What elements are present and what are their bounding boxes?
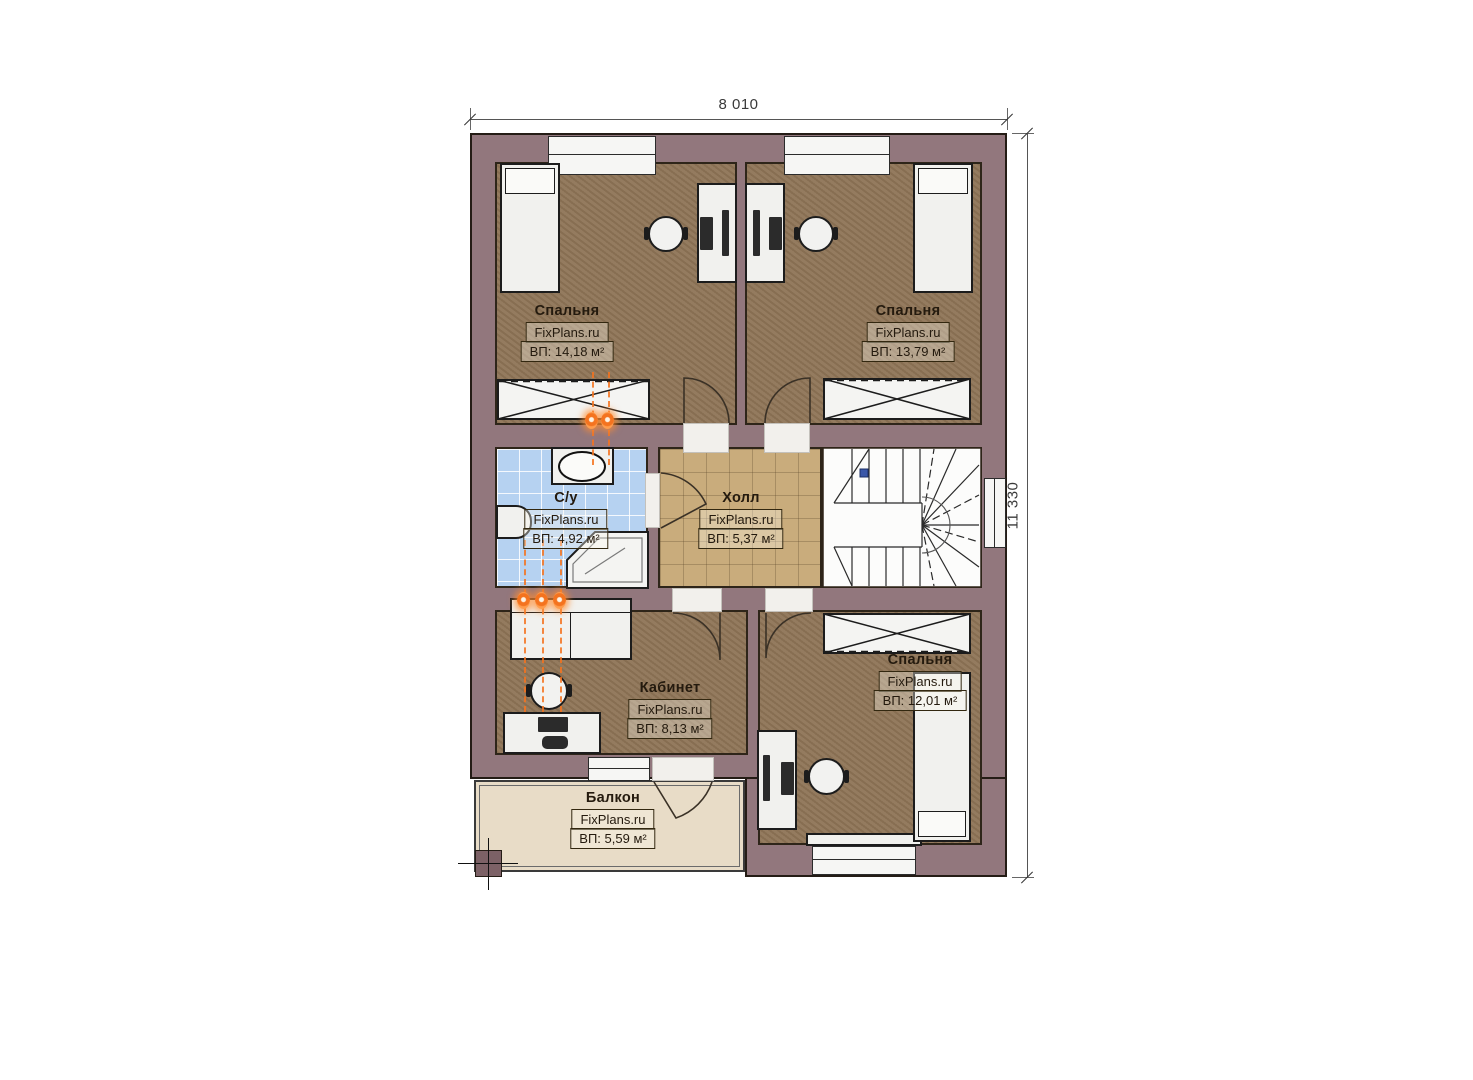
- printer-icon: [542, 736, 568, 749]
- area-box: ВП: 13,79 м²: [862, 341, 955, 362]
- sofa-back-line: [512, 612, 630, 613]
- floor-plan-canvas: 8 010 11 330: [0, 0, 1473, 1080]
- staircase: [822, 447, 982, 588]
- riser-line: [560, 540, 562, 712]
- riser-dot: [601, 412, 614, 429]
- chair: [798, 216, 834, 252]
- monitor-icon: [769, 217, 782, 250]
- window-bedroom-top-right: [784, 136, 890, 175]
- pillow: [918, 811, 966, 837]
- dimension-width-line: [470, 119, 1007, 120]
- dimension-height-line: [1027, 133, 1028, 877]
- wardrobe: [823, 613, 971, 654]
- room-name: Холл: [722, 490, 760, 506]
- door-opening-bathroom: [645, 473, 660, 528]
- room-label-office: Кабинет FixPlans.ru ВП: 8,13 м²: [627, 680, 712, 739]
- window-stairwell: [984, 478, 1006, 548]
- window-bedroom-bottom: [812, 846, 916, 875]
- area-box: ВП: 14,18 м²: [521, 341, 614, 362]
- dimension-width-label: 8 010: [470, 96, 1007, 113]
- dimension-extension: [1012, 877, 1034, 878]
- riser-dot: [517, 592, 530, 609]
- monitor-icon: [700, 217, 713, 250]
- pillow: [918, 168, 968, 194]
- room-name: Кабинет: [640, 680, 701, 696]
- monitor-icon: [763, 755, 770, 801]
- sink-basin: [558, 451, 606, 482]
- watermark-box: FixPlans.ru: [866, 322, 949, 343]
- dimension-height-label: 11 330: [1005, 466, 1022, 546]
- bed: [500, 163, 560, 293]
- area-box: ВП: 4,92 м²: [523, 528, 608, 549]
- windowsill-bedroom-bottom: [806, 833, 922, 846]
- riser-line: [524, 540, 526, 712]
- watermark-box: FixPlans.ru: [878, 671, 961, 692]
- area-box: ВП: 5,37 м²: [698, 528, 783, 549]
- room-label-hall: Холл FixPlans.ru ВП: 5,37 м²: [698, 490, 783, 549]
- chair: [648, 216, 684, 252]
- area-box: ВП: 5,59 м²: [570, 828, 655, 849]
- wardrobe: [497, 379, 650, 420]
- watermark-box: FixPlans.ru: [628, 699, 711, 720]
- room-label-bedroom-top-right: Спальня FixPlans.ru ВП: 13,79 м²: [862, 303, 955, 362]
- bed: [913, 163, 973, 293]
- door-arc-balcony: [652, 781, 714, 823]
- door-arc-bedroom-bottom: [765, 612, 813, 660]
- riser-dot: [535, 592, 548, 609]
- wardrobe: [823, 378, 971, 420]
- sofa-cushion-divider: [570, 612, 571, 658]
- riser-dot: [585, 412, 598, 429]
- room-label-bedroom-top-left: Спальня FixPlans.ru ВП: 14,18 м²: [521, 303, 614, 362]
- room-label-bedroom-bottom-right: Спальня FixPlans.ru ВП: 12,01 м²: [874, 652, 967, 711]
- monitor-icon: [722, 210, 729, 256]
- watermark-box: FixPlans.ru: [524, 509, 607, 530]
- pillow: [505, 168, 555, 194]
- door-arc-bedroom-top-left: [683, 377, 730, 424]
- watermark-box: FixPlans.ru: [699, 509, 782, 530]
- watermark-box: FixPlans.ru: [525, 322, 608, 343]
- room-name: С/у: [554, 490, 577, 506]
- door-opening-balcony: [652, 757, 714, 781]
- chair: [530, 672, 568, 710]
- room-name: Спальня: [888, 652, 953, 668]
- room-name: Спальня: [876, 303, 941, 319]
- door-opening-office: [672, 588, 722, 612]
- sofa: [510, 598, 632, 660]
- watermark-box: FixPlans.ru: [571, 809, 654, 830]
- window-office-balcony: [588, 757, 650, 781]
- room-label-bathroom: С/у FixPlans.ru ВП: 4,92 м²: [523, 490, 608, 549]
- window-bedroom-top-left: [548, 136, 656, 175]
- column-axis-line: [488, 838, 489, 890]
- riser-line: [542, 540, 544, 712]
- door-opening-bedroom-top-left: [683, 423, 729, 453]
- dimension-extension: [1012, 133, 1034, 134]
- room-name: Спальня: [535, 303, 600, 319]
- chair: [808, 758, 845, 795]
- riser-dot: [553, 592, 566, 609]
- monitor-icon: [753, 210, 760, 256]
- monitor-icon: [538, 717, 568, 732]
- door-opening-bedroom-bottom: [765, 588, 813, 612]
- stair-marker: [860, 469, 868, 477]
- door-opening-bedroom-top-right: [764, 423, 810, 453]
- room-name: Балкон: [586, 790, 640, 806]
- door-arc-office: [672, 612, 722, 662]
- area-box: ВП: 8,13 м²: [627, 718, 712, 739]
- area-box: ВП: 12,01 м²: [874, 690, 967, 711]
- door-arc-bedroom-top-right: [764, 377, 811, 424]
- room-label-balcony: Балкон FixPlans.ru ВП: 5,59 м²: [570, 790, 655, 849]
- monitor-icon: [781, 762, 794, 795]
